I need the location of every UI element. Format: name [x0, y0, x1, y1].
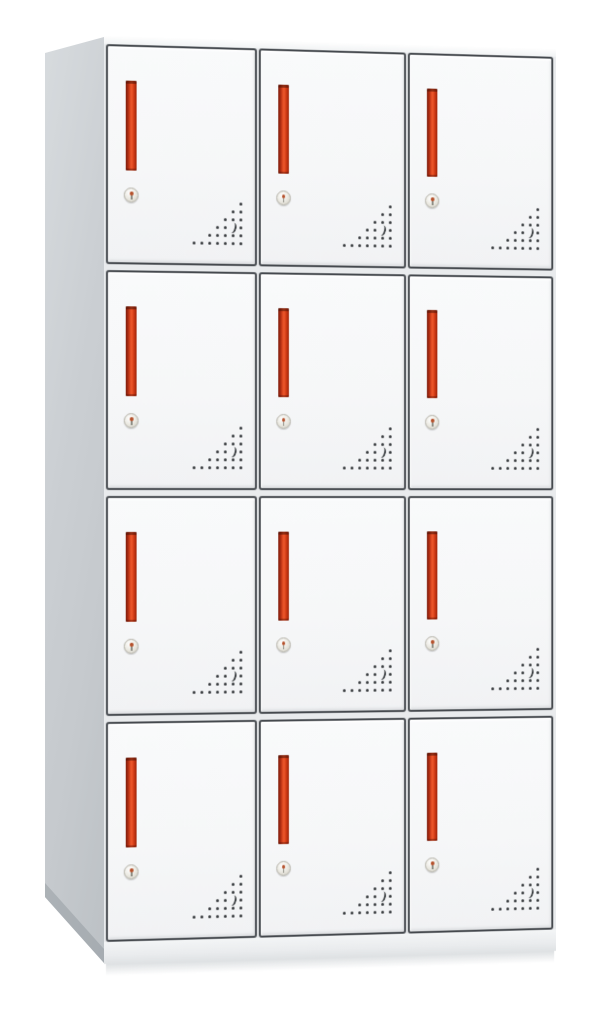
vent-hole-dot: [536, 883, 539, 886]
vent-hole-dot: [514, 892, 517, 895]
vent-hole-dot: [514, 459, 517, 462]
vent-hole-dot: [216, 691, 219, 694]
locker-door: [408, 496, 553, 712]
vent-hole-dot: [224, 218, 227, 221]
vent-hole-dot: [239, 210, 242, 213]
vent-hole-dot: [192, 241, 195, 244]
vent-hole-dot: [521, 671, 524, 674]
vent-hole-dot: [382, 443, 385, 446]
vent-hole-dot: [216, 226, 219, 229]
vent-hole-dot: [382, 879, 385, 882]
vent-hole-dot: [216, 907, 219, 910]
vent-hole-dot: [382, 681, 385, 684]
vent-hole-dot: [382, 245, 385, 248]
vent-hole-dot: [231, 915, 234, 918]
vent-hole-dot: [208, 242, 211, 245]
vent-hole-dot: [366, 689, 369, 692]
vent-hole-dot: [374, 244, 377, 247]
door-handle: [126, 532, 137, 622]
vent-hole-dot: [389, 237, 392, 240]
vent-hole-dot: [382, 665, 385, 668]
vent-hole-dot: [491, 908, 494, 911]
vent-hole-dot: [239, 667, 242, 670]
vent-hole-dot: [389, 895, 392, 898]
vent-hole-dot: [514, 231, 517, 234]
door-handle: [126, 306, 137, 396]
vent-hole-dot: [382, 689, 385, 692]
vent-holes: [489, 866, 543, 918]
vent-hole-dot: [374, 451, 377, 454]
vent-hole-dot: [529, 216, 532, 219]
vent-hole-dot: [529, 239, 532, 242]
vent-hole-dot: [231, 682, 234, 685]
vent-hole-dot: [382, 911, 385, 914]
vent-hole-dot: [216, 683, 219, 686]
vent-hole-dot: [366, 459, 369, 462]
vent-hole-dot: [382, 237, 385, 240]
vent-hole-dot: [536, 216, 539, 219]
vent-hole-dot: [200, 242, 203, 245]
vent-hole-dot: [506, 679, 509, 682]
vent-hole-dot: [529, 876, 532, 879]
door-handle: [427, 531, 437, 619]
locker-door: [259, 272, 407, 490]
vent-hole-dot: [200, 466, 203, 469]
vent-hole-dot: [239, 883, 242, 886]
vent-hole-dot: [216, 675, 219, 678]
vent-hole-dot: [366, 467, 369, 470]
vent-hole-dot: [389, 467, 392, 470]
vent-hole-dot: [231, 907, 234, 910]
vent-hole-dot: [216, 458, 219, 461]
vent-hole-dot: [514, 451, 517, 454]
vent-hole-dot: [343, 467, 346, 470]
vent-hole-dot: [359, 681, 362, 684]
vent-hole-dot: [499, 467, 502, 470]
locker-cabinet-photo: [0, 0, 605, 1009]
door-lock-icon: [276, 414, 291, 429]
vent-hole-dot: [536, 459, 539, 462]
locker-door: [259, 718, 407, 938]
vent-hole-dot: [374, 681, 377, 684]
vent-holes: [190, 873, 246, 926]
vent-hole-dot: [231, 435, 234, 438]
door-handle: [427, 89, 437, 177]
vent-hole-dot: [239, 435, 242, 438]
vent-hole-dot: [382, 887, 385, 890]
vent-hole-dot: [536, 687, 539, 690]
door-lock-icon: [124, 864, 139, 879]
vent-hole-dot: [208, 691, 211, 694]
vent-hole-dot: [231, 466, 234, 469]
vent-hole-dot: [231, 458, 234, 461]
vent-hole-dot: [239, 891, 242, 894]
vent-hole-dot: [389, 459, 392, 462]
door-lock-icon: [425, 193, 439, 208]
vent-hole-dot: [224, 675, 227, 678]
vent-hole-dot: [200, 691, 203, 694]
vent-hole-dot: [491, 467, 494, 470]
vent-hole-dot: [224, 450, 227, 453]
door-lock-icon: [124, 413, 139, 428]
vent-hole-dot: [224, 442, 227, 445]
door-handle: [278, 308, 289, 397]
locker-door: [408, 53, 553, 271]
vent-hole-dot: [389, 910, 392, 913]
vent-hole-dot: [359, 459, 362, 462]
vent-hole-dot: [224, 458, 227, 461]
vent-hole-dot: [514, 679, 517, 682]
vent-hole-dot: [382, 467, 385, 470]
vent-hole-dot: [382, 903, 385, 906]
vent-hole-dot: [374, 689, 377, 692]
vent-hole-dot: [521, 907, 524, 910]
door-handle: [278, 85, 289, 174]
door-lock-icon: [276, 861, 291, 876]
vent-hole-dot: [529, 656, 532, 659]
vent-hole-dot: [374, 895, 377, 898]
vent-hole-dot: [366, 244, 369, 247]
vent-holes: [489, 646, 543, 697]
door-handle: [427, 310, 437, 398]
vent-hole-dot: [521, 239, 524, 242]
vent-hole-dot: [351, 689, 354, 692]
vent-hole-dot: [366, 451, 369, 454]
vent-hole-dot: [389, 665, 392, 668]
vent-hole-dot: [239, 674, 242, 677]
vent-holes: [489, 205, 543, 257]
locker-door: [106, 720, 257, 942]
vent-holes: [341, 425, 396, 476]
vent-hole-dot: [536, 467, 539, 470]
vent-hole-dot: [224, 891, 227, 894]
vent-holes: [341, 869, 396, 922]
vent-hole-dot: [224, 466, 227, 469]
vent-hole-dot: [389, 681, 392, 684]
vent-hole-dot: [389, 903, 392, 906]
vent-hole-dot: [239, 442, 242, 445]
vent-holes: [190, 200, 246, 253]
vent-hole-dot: [382, 657, 385, 660]
vent-hole-dot: [506, 247, 509, 250]
vent-crescent-cutout: [525, 887, 535, 899]
vent-hole-dot: [536, 891, 539, 894]
vent-hole-dot: [529, 899, 532, 902]
vent-hole-dot: [239, 242, 242, 245]
vent-hole-dot: [359, 689, 362, 692]
vent-hole-dot: [536, 671, 539, 674]
vent-hole-dot: [514, 247, 517, 250]
vent-hole-dot: [389, 213, 392, 216]
vent-hole-dot: [536, 208, 539, 211]
locker-door: [106, 496, 257, 716]
vent-hole-dot: [514, 239, 517, 242]
vent-hole-dot: [499, 687, 502, 690]
vent-hole-dot: [359, 244, 362, 247]
vent-hole-dot: [224, 915, 227, 918]
vent-hole-dot: [521, 899, 524, 902]
vent-hole-dot: [536, 907, 539, 910]
vent-hole-dot: [239, 458, 242, 461]
vent-hole-dot: [366, 673, 369, 676]
locker-door: [259, 496, 407, 714]
vent-hole-dot: [374, 665, 377, 668]
vent-crescent-cutout: [377, 890, 387, 902]
locker-door: [106, 44, 257, 266]
vent-hole-dot: [239, 914, 242, 917]
locker-door: [106, 270, 257, 490]
vent-hole-dot: [208, 466, 211, 469]
vent-hole-dot: [208, 234, 211, 237]
vent-hole-dot: [208, 683, 211, 686]
vent-hole-dot: [366, 229, 369, 232]
vent-hole-dot: [216, 899, 219, 902]
vent-hole-dot: [514, 467, 517, 470]
vent-hole-dot: [529, 224, 532, 227]
vent-hole-dot: [366, 236, 369, 239]
vent-hole-dot: [231, 218, 234, 221]
vent-hole-dot: [224, 667, 227, 670]
vent-hole-dot: [521, 467, 524, 470]
vent-hole-dot: [374, 229, 377, 232]
vent-hole-dot: [521, 231, 524, 234]
vent-hole-dot: [389, 657, 392, 660]
vent-hole-dot: [343, 689, 346, 692]
vent-hole-dot: [536, 899, 539, 902]
vent-hole-dot: [200, 915, 203, 918]
locker-door: [259, 48, 407, 268]
vent-hole-dot: [389, 221, 392, 224]
vent-hole-dot: [536, 247, 539, 250]
vent-hole-dot: [389, 435, 392, 438]
vent-crescent-cutout: [227, 894, 237, 906]
vent-holes: [341, 647, 396, 699]
vent-hole-dot: [514, 899, 517, 902]
vent-hole-dot: [224, 242, 227, 245]
vent-hole-dot: [514, 907, 517, 910]
vent-hole-dot: [231, 667, 234, 670]
vent-hole-dot: [231, 234, 234, 237]
vent-hole-dot: [536, 436, 539, 439]
vent-hole-dot: [231, 659, 234, 662]
vent-hole-dot: [521, 247, 524, 250]
vent-hole-dot: [216, 234, 219, 237]
vent-hole-dot: [514, 687, 517, 690]
vent-hole-dot: [521, 223, 524, 226]
vent-hole-dot: [374, 221, 377, 224]
vent-hole-dot: [239, 466, 242, 469]
vent-hole-dot: [351, 467, 354, 470]
vent-hole-dot: [366, 911, 369, 914]
vent-hole-dot: [506, 900, 509, 903]
vent-hole-dot: [374, 673, 377, 676]
cabinet-front: [104, 36, 556, 964]
vent-hole-dot: [231, 210, 234, 213]
vent-hole-dot: [529, 883, 532, 886]
vent-hole-dot: [506, 239, 509, 242]
vent-hole-dot: [374, 903, 377, 906]
vent-hole-dot: [521, 679, 524, 682]
vent-hole-dot: [529, 467, 532, 470]
door-handle: [427, 753, 437, 841]
vent-hole-dot: [506, 459, 509, 462]
vent-hole-dot: [389, 205, 392, 208]
vent-hole-dot: [224, 226, 227, 229]
vent-crescent-cutout: [227, 221, 237, 234]
vent-hole-dot: [351, 244, 354, 247]
door-lock-icon: [276, 637, 291, 652]
vent-hole-dot: [389, 649, 392, 652]
vent-hole-dot: [499, 246, 502, 249]
vent-hole-dot: [536, 648, 539, 651]
door-lock-icon: [425, 636, 439, 651]
vent-hole-dot: [231, 442, 234, 445]
locker-door: [408, 716, 553, 934]
vent-hole-dot: [343, 244, 346, 247]
vent-hole-dot: [529, 459, 532, 462]
vent-hole-dot: [521, 891, 524, 894]
vent-hole-dot: [224, 683, 227, 686]
vent-hole-dot: [374, 459, 377, 462]
vent-hole-dot: [521, 687, 524, 690]
vent-hole-dot: [389, 887, 392, 890]
vent-hole-dot: [536, 451, 539, 454]
vent-hole-dot: [389, 879, 392, 882]
vent-hole-dot: [389, 689, 392, 692]
vent-hole-dot: [239, 690, 242, 693]
vent-crescent-cutout: [377, 668, 387, 680]
vent-hole-dot: [192, 691, 195, 694]
door-handle: [126, 757, 137, 847]
vent-hole-dot: [536, 663, 539, 666]
vent-hole-dot: [389, 451, 392, 454]
vent-hole-dot: [536, 428, 539, 431]
vent-hole-dot: [529, 663, 532, 666]
vent-hole-dot: [521, 451, 524, 454]
vent-hole-dot: [231, 883, 234, 886]
vent-hole-dot: [359, 903, 362, 906]
vent-hole-dot: [208, 458, 211, 461]
vent-hole-dot: [536, 868, 539, 871]
vent-crescent-cutout: [227, 670, 237, 682]
vent-hole-dot: [499, 908, 502, 911]
vent-hole-dot: [536, 224, 539, 227]
vent-hole-dot: [224, 899, 227, 902]
door-grid: [104, 44, 556, 942]
vent-hole-dot: [389, 443, 392, 446]
vent-crescent-cutout: [227, 446, 237, 459]
vent-hole-dot: [359, 467, 362, 470]
vent-hole-dot: [366, 681, 369, 684]
door-handle: [278, 755, 289, 844]
vent-hole-dot: [366, 895, 369, 898]
vent-hole-dot: [536, 231, 539, 234]
vent-hole-dot: [382, 213, 385, 216]
vent-hole-dot: [491, 687, 494, 690]
vent-hole-dot: [536, 656, 539, 659]
vent-hole-dot: [536, 444, 539, 447]
vent-hole-dot: [351, 911, 354, 914]
cabinet-side-panel: [45, 36, 104, 963]
door-handle: [278, 532, 289, 621]
vent-holes: [489, 426, 543, 477]
vent-hole-dot: [521, 444, 524, 447]
vent-hole-dot: [529, 247, 532, 250]
vent-hole-dot: [239, 234, 242, 237]
vent-hole-dot: [521, 884, 524, 887]
vent-hole-dot: [491, 246, 494, 249]
vent-hole-dot: [231, 891, 234, 894]
door-lock-icon: [124, 639, 139, 654]
vent-hole-dot: [389, 673, 392, 676]
vent-hole-dot: [382, 459, 385, 462]
vent-hole-dot: [239, 875, 242, 878]
vent-hole-dot: [231, 690, 234, 693]
vent-hole-dot: [359, 236, 362, 239]
door-lock-icon: [425, 857, 439, 872]
vent-hole-dot: [514, 671, 517, 674]
vent-holes: [190, 424, 246, 476]
vent-hole-dot: [224, 691, 227, 694]
vent-hole-dot: [374, 443, 377, 446]
vent-hole-dot: [224, 234, 227, 237]
vent-hole-dot: [536, 875, 539, 878]
vent-hole-dot: [239, 659, 242, 662]
vent-hole-dot: [239, 450, 242, 453]
vent-hole-dot: [529, 907, 532, 910]
vent-hole-dot: [389, 871, 392, 874]
vent-hole-dot: [374, 911, 377, 914]
vent-hole-dot: [208, 915, 211, 918]
vent-hole-dot: [529, 679, 532, 682]
vent-crescent-cutout: [525, 667, 535, 679]
vent-hole-dot: [529, 687, 532, 690]
vent-hole-dot: [506, 467, 509, 470]
vent-hole-dot: [239, 899, 242, 902]
vent-hole-dot: [192, 916, 195, 919]
vent-crescent-cutout: [377, 224, 387, 236]
vent-hole-dot: [239, 427, 242, 430]
vent-hole-dot: [343, 912, 346, 915]
vent-holes: [341, 202, 396, 254]
vent-hole-dot: [239, 203, 242, 206]
door-lock-icon: [124, 187, 139, 202]
vent-hole-dot: [389, 427, 392, 430]
vent-hole-dot: [374, 467, 377, 470]
vent-hole-dot: [389, 245, 392, 248]
vent-hole-dot: [192, 466, 195, 469]
locker-door: [408, 274, 553, 490]
door-lock-icon: [425, 415, 439, 430]
vent-holes: [190, 649, 246, 701]
vent-hole-dot: [374, 887, 377, 890]
vent-hole-dot: [521, 664, 524, 667]
vent-hole-dot: [506, 687, 509, 690]
vent-hole-dot: [374, 237, 377, 240]
vent-hole-dot: [216, 915, 219, 918]
vent-hole-dot: [506, 907, 509, 910]
vent-hole-dot: [536, 679, 539, 682]
vent-hole-dot: [224, 907, 227, 910]
side-panel-face: [45, 36, 104, 963]
vent-hole-dot: [239, 682, 242, 685]
door-lock-icon: [276, 190, 291, 205]
vent-hole-dot: [239, 906, 242, 909]
vent-hole-dot: [208, 907, 211, 910]
door-handle: [126, 81, 137, 171]
vent-hole-dot: [382, 435, 385, 438]
vent-hole-dot: [216, 450, 219, 453]
